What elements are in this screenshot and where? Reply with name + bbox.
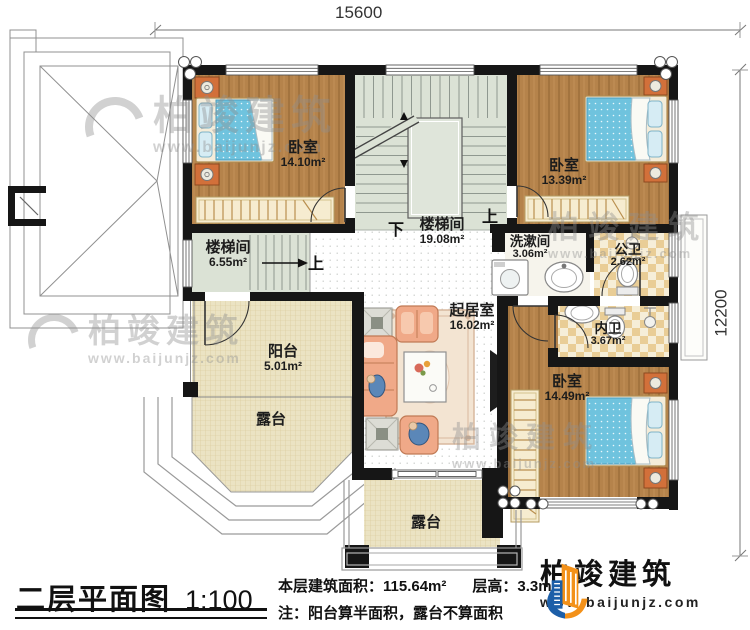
brand-logo-icon — [540, 560, 590, 624]
armchair-bottom — [400, 416, 438, 454]
bed — [585, 96, 667, 162]
sink — [545, 262, 583, 292]
floor-area: 本层建筑面积：115.64m² — [278, 578, 446, 595]
window — [386, 65, 474, 75]
window — [669, 100, 678, 163]
balcony-floor — [192, 301, 352, 397]
area-note: 注：阳台算半面积，露台不算面积 — [278, 602, 552, 623]
window — [540, 65, 637, 75]
bed — [196, 98, 274, 162]
washing-machine — [492, 260, 528, 295]
window — [226, 65, 318, 75]
loveseat-top — [396, 306, 438, 342]
toilet — [605, 308, 625, 338]
side-ledge — [681, 215, 707, 360]
nightstand — [644, 164, 667, 182]
stair-down-label: 下 — [388, 216, 404, 240]
wardrobe — [525, 196, 629, 222]
coffee-table — [404, 352, 446, 402]
window — [183, 240, 192, 287]
window — [669, 233, 678, 277]
floor-plan-canvas: 柏竣建筑 www.baijunjz.com 柏竣建筑 www.baijunjz.… — [0, 0, 750, 630]
sliding-door — [392, 470, 482, 478]
lower-roof — [10, 30, 183, 328]
bed — [585, 396, 666, 466]
stair-up-small-label: 上 — [308, 250, 324, 274]
brand-block: 柏竣建筑 www.baijunjz.com — [540, 560, 701, 610]
dimension-depth: 12200 — [712, 289, 732, 336]
window — [669, 400, 678, 480]
nightstand — [644, 77, 667, 95]
nightstand — [195, 77, 219, 98]
dimension-width: 15600 — [335, 3, 382, 23]
nightstand — [195, 164, 219, 185]
title-underline — [15, 608, 267, 619]
plan-notes: 本层建筑面积：115.64m²层高：3.3m 注：阳台算半面积，露台不算面积 — [278, 575, 552, 623]
floor-plan-drawing — [0, 0, 750, 630]
stair-up-main-label: 上 — [482, 203, 498, 227]
window — [540, 499, 637, 508]
corner-table-bottom — [366, 418, 398, 450]
nightstand — [644, 373, 667, 393]
terrace-left-floor — [192, 397, 352, 492]
window — [183, 100, 192, 163]
toilet — [617, 262, 638, 296]
terrace-bottom-floor — [364, 480, 500, 547]
nightstand — [644, 468, 667, 488]
window — [669, 303, 678, 343]
corner-table-top — [362, 308, 392, 338]
